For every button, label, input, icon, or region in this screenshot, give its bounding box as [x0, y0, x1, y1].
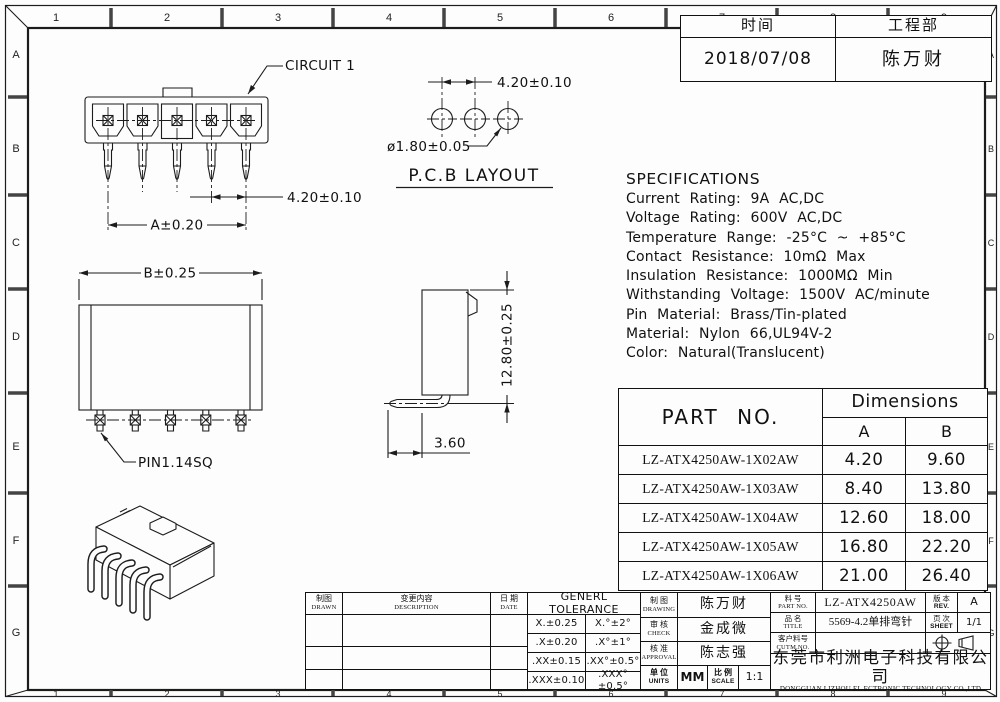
tolerance-linear: X.±0.25 — [527, 614, 586, 634]
meta-dept-header: 工程部 — [835, 15, 992, 38]
revision-cell — [342, 669, 491, 690]
date-header-en: DATE — [500, 604, 517, 611]
tolerance-linear: .X±0.20 — [527, 633, 586, 653]
spec-line: Temperature Range: -25°C ~ +85°C — [626, 229, 986, 248]
front-pitch-dim: 4.20±0.10 — [287, 190, 362, 206]
pin-size-label: PIN1.14SQ — [138, 455, 213, 471]
zone-row-label: B — [12, 143, 19, 155]
description-header-zh: 变更内容 — [401, 595, 433, 604]
spec-line: Contact Resistance: 10mΩ Max — [626, 248, 986, 267]
part-row-a: 12.60 — [822, 503, 906, 533]
bottom-width-dim: B±0.25 — [143, 266, 196, 282]
spec-line: Color: Natural(Translucent) — [626, 344, 986, 363]
tolerance-linear: .XX±0.15 — [527, 652, 586, 672]
part-row-a: 8.40 — [822, 474, 906, 504]
col-b-header: B — [905, 417, 988, 446]
zone-col-label: 5 — [497, 12, 503, 24]
part-row-b: 26.40 — [905, 561, 988, 591]
zone-row-label: D — [12, 331, 20, 343]
date-header-zh: 日 期 — [500, 595, 518, 604]
tolerance-linear: .XXX±0.10 — [527, 671, 586, 690]
partno-label: 料 号 PART NO. — [770, 592, 816, 613]
zone-row-label: F — [13, 535, 20, 547]
drawn-header-zh: 制图 — [316, 595, 332, 604]
zone-col-label: 3 — [275, 12, 281, 24]
sheet-label-zh: 页 次 — [933, 615, 950, 623]
spec-line: Insulation Resistance: 1000MΩ Min — [626, 267, 986, 286]
description-header-en: DESCRIPTION — [394, 604, 438, 611]
revision-cell — [305, 646, 343, 670]
circuit-label: CIRCUIT 1 — [285, 58, 355, 74]
drawn-header-en: DRAWN — [311, 604, 336, 611]
meta-table: 时间 工程部 2018/07/08 陈万财 — [680, 15, 992, 82]
drawing-value: 陈万财 — [677, 592, 771, 618]
bottom-view: B±0.25 PIN1.14SQ — [79, 266, 262, 472]
spec-line: Voltage Rating: 600V AC,DC — [626, 209, 986, 228]
date-header: 日 期 DATE — [490, 592, 528, 615]
specifications-block: SPECIFICATIONS Current Rating: 9A AC,DC … — [626, 170, 986, 364]
revision-cell — [305, 669, 343, 690]
rev-value: A — [957, 592, 991, 613]
scale-label-zh: 比 例 — [714, 669, 732, 678]
part-row-part: LZ-ATX4250AW-1X05AW — [618, 532, 823, 562]
part-row-a: 16.80 — [822, 532, 906, 562]
units-label-en: UNITS — [649, 678, 670, 685]
drawing-label-zh: 制 图 — [650, 597, 668, 606]
company-name-zh: 东莞市利洲电子科技有限公司 — [771, 649, 990, 686]
zone-row-label: A — [12, 49, 20, 61]
partno-label-zh: 料 号 — [785, 595, 802, 603]
title-label: 品 名 TITLE — [770, 612, 816, 633]
revision-cell — [490, 614, 528, 647]
approval-label-en: APPROVAL — [641, 654, 676, 661]
specifications-title: SPECIFICATIONS — [626, 170, 986, 188]
revision-cell — [342, 614, 491, 647]
meta-time-header: 时间 — [680, 15, 836, 38]
tolerance-angular: X.°±2° — [585, 614, 641, 634]
side-tail-dim: 3.60 — [434, 436, 466, 452]
company-name-en: DONGGUAN LIZHOU EL ECTRONIC TECHNOLOGY C… — [780, 686, 981, 694]
pcb-hole-dim: ø1.80±0.05 — [387, 139, 471, 155]
zone-col-label: 2 — [164, 689, 169, 699]
zone-col-label: 4 — [386, 12, 392, 24]
revision-cell — [305, 614, 343, 647]
tolerance-angular: .XXX°±0.5° — [585, 671, 641, 690]
zone-col-label: 4 — [386, 689, 391, 699]
front-width-dim: A±0.20 — [150, 218, 203, 234]
spec-line: Pin Material: Brass/Tin-plated — [626, 306, 986, 325]
part-row-b: 22.20 — [905, 532, 988, 562]
part-row-part: LZ-ATX4250AW-1X02AW — [618, 445, 823, 475]
zone-col-label: 6 — [608, 12, 614, 24]
check-label: 审 核 CHECK — [640, 617, 678, 642]
scale-label: 比 例 SCALE — [707, 665, 739, 690]
title-block: 制图 DRAWN 变更内容 DESCRIPTION 日 期 DATE GENER… — [305, 592, 991, 690]
pcb-layout-view: 4.20±0.10 ø1.80±0.05 P.C.B LAYOUT — [387, 75, 572, 188]
meta-date-value: 2018/07/08 — [680, 37, 836, 82]
tolerance-title: GENERL TOLERANCE — [527, 592, 641, 615]
zone-row-label: E — [988, 442, 994, 452]
rev-label-zh: 版 本 — [933, 595, 950, 603]
zone-row-label: F — [988, 536, 994, 546]
zone-col-label: 5 — [497, 689, 502, 699]
col-a-header: A — [822, 417, 906, 446]
part-row-part: LZ-ATX4250AW-1X04AW — [618, 503, 823, 533]
pcb-pitch-dim: 4.20±0.10 — [497, 75, 572, 91]
zone-col-label: 1 — [53, 12, 59, 24]
zone-row-label: G — [12, 627, 21, 639]
pcb-view-title: P.C.B LAYOUT — [408, 166, 539, 186]
zone-row-label: C — [12, 237, 20, 249]
custno-label-zh: 客户料号 — [778, 635, 808, 643]
zone-col-label: 3 — [275, 689, 280, 699]
approval-label-zh: 核 准 — [650, 645, 668, 654]
bottom-pins — [95, 410, 246, 431]
zone-row-label: B — [988, 144, 994, 154]
check-value: 金成微 — [677, 617, 771, 642]
units-value: MM — [677, 665, 708, 690]
sheet-label: 页 次 SHEET — [925, 612, 958, 633]
front-view: CIRCUIT 1 4.20±0.10 A±0.20 — [85, 58, 362, 234]
spec-line: Current Rating: 9A AC,DC — [626, 190, 986, 209]
check-label-zh: 审 核 — [650, 621, 668, 630]
zone-col-label: 7 — [719, 689, 724, 699]
approval-value: 陈志强 — [677, 641, 771, 666]
zone-col-label: 1 — [53, 689, 58, 699]
side-height-dim: 12.80±0.25 — [500, 303, 516, 387]
part-dimensions-table: PART NO. Dimensions A B LZ-ATX4250AW-1X0… — [618, 388, 988, 591]
partno-value: LZ-ATX4250AW — [815, 592, 926, 613]
part-row-part: LZ-ATX4250AW-1X03AW — [618, 474, 823, 504]
approval-label: 核 准 APPROVAL — [640, 641, 678, 666]
drawn-header: 制图 DRAWN — [305, 592, 343, 615]
engineering-drawing-sheet: 112233445566778899AABBCCDDEEFFGG — [0, 0, 1000, 702]
units-label: 单 位 UNITS — [640, 665, 678, 690]
title-label-zh: 品 名 — [785, 615, 802, 623]
spec-line: Material: Nylon 66,UL94V-2 — [626, 325, 986, 344]
spec-line: Withstanding Voltage: 1500V AC/minute — [626, 286, 986, 305]
part-no-header: PART NO. — [618, 388, 823, 446]
meta-engineer-value: 陈万财 — [835, 37, 992, 82]
part-row-b: 9.60 — [905, 445, 988, 475]
sheet-value: 1/1 — [957, 612, 991, 633]
revision-cell — [342, 646, 491, 670]
drawing-label: 制 图 DRAWING — [640, 592, 678, 618]
part-row-b: 13.80 — [905, 474, 988, 504]
zone-row-label: E — [12, 441, 19, 453]
part-row-a: 4.20 — [822, 445, 906, 475]
zone-row-label: D — [988, 332, 995, 342]
zone-col-label: 2 — [164, 12, 170, 24]
drawing-label-en: DRAWING — [643, 606, 675, 613]
dimensions-header: Dimensions — [822, 388, 988, 418]
rev-label: 版 本 REV. — [925, 592, 958, 613]
title-label-en: TITLE — [783, 623, 802, 630]
sheet-label-en: SHEET — [930, 623, 953, 630]
description-header: 变更内容 DESCRIPTION — [342, 592, 491, 615]
isometric-view — [91, 506, 214, 617]
units-label-zh: 单 位 — [650, 669, 668, 678]
tolerance-angular: .X°±1° — [585, 633, 641, 653]
company-cell: 东莞市利洲电子科技有限公司 DONGGUAN LIZHOU EL ECTRONI… — [770, 653, 991, 690]
check-label-en: CHECK — [647, 630, 670, 637]
revision-cell — [490, 669, 528, 690]
part-row-b: 18.00 — [905, 503, 988, 533]
rev-label-en: REV. — [934, 603, 949, 610]
scale-value: 1:1 — [738, 665, 771, 690]
partno-label-en: PART NO. — [778, 603, 808, 610]
part-row-a: 21.00 — [822, 561, 906, 591]
zone-row-label: C — [988, 238, 995, 248]
title-value: 5569-4.2单排弯针 — [815, 612, 926, 633]
part-row-part: LZ-ATX4250AW-1X06AW — [618, 561, 823, 591]
scale-label-en: SCALE — [711, 678, 734, 685]
revision-cell — [490, 646, 528, 670]
side-view: 12.80±0.25 3.60 — [384, 271, 516, 458]
